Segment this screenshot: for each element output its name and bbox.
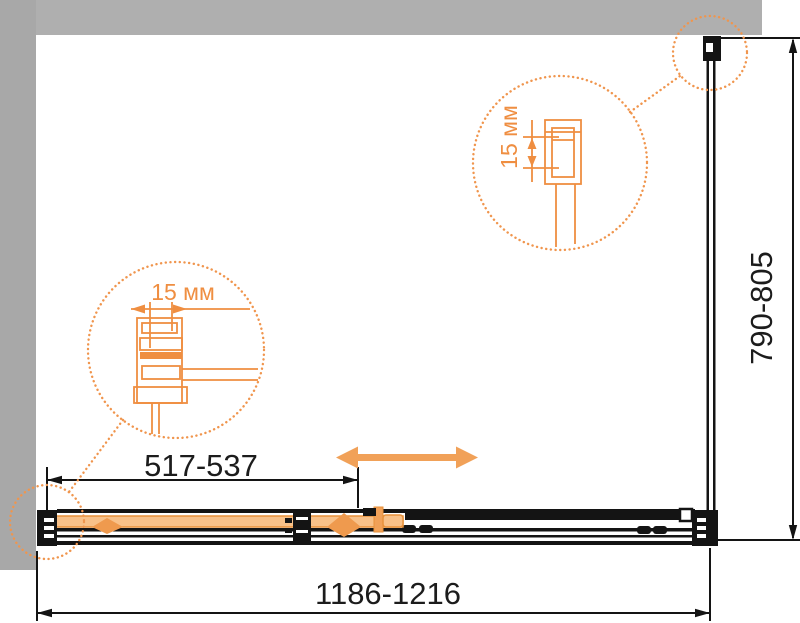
door-end-cap-orange <box>383 515 403 527</box>
arrowhead-bottom-icon <box>789 525 797 540</box>
detail-arrow-right-icon <box>173 305 187 314</box>
center-bracket <box>293 509 311 543</box>
arrow-head-right <box>456 447 478 469</box>
dimension-overall-width: 1186-1216 <box>37 548 710 621</box>
rail-bottom <box>57 541 695 545</box>
wall-top <box>0 0 762 35</box>
wall-profile-top-slot <box>706 43 713 52</box>
right-adjustment-value: 15 мм <box>496 105 522 169</box>
arrowhead-left-icon <box>37 609 52 617</box>
shower-enclosure-plan-drawing: 517-537 1186-1216 790-805 15 мм <box>0 0 800 623</box>
detail-profile-left <box>134 318 258 434</box>
glass-edge-line-2 <box>713 58 716 510</box>
arrowhead-top-icon <box>789 38 797 53</box>
arrowhead-right-icon <box>695 609 710 617</box>
technical-drawing-canvas: 517-537 1186-1216 790-805 15 мм <box>0 0 800 623</box>
sliding-door-frame <box>37 507 718 546</box>
junction-block <box>363 508 376 516</box>
roller-black-4 <box>653 526 667 534</box>
wall-profile-left-slot-2 <box>44 526 54 530</box>
roller-black-1 <box>402 525 416 533</box>
door-opening-value: 517-537 <box>144 448 258 483</box>
slide-direction-arrow-icon <box>336 447 478 469</box>
detail-arrow-down-icon <box>528 156 537 167</box>
rail-mid-2 <box>57 535 695 538</box>
door-knob-square <box>680 509 692 521</box>
wall-top-surface <box>0 0 762 35</box>
detail-leader-left <box>69 420 123 492</box>
wall-left <box>0 0 36 570</box>
end-profile-slot-1 <box>697 518 706 522</box>
arrow-head-left <box>336 447 358 469</box>
detail-profile-right <box>545 120 581 247</box>
fixed-panel-bar <box>405 513 693 520</box>
arrowhead-left-icon <box>47 476 62 484</box>
profile-band-1 <box>140 338 182 350</box>
dimension-overall-depth: 790-805 <box>718 38 800 540</box>
profile-outer <box>137 318 182 403</box>
center-bracket-tab-1 <box>285 518 292 523</box>
detail-arrow-up-icon <box>528 138 537 149</box>
center-bracket-slot-2 <box>296 530 308 533</box>
overall-depth-value: 790-805 <box>744 251 779 365</box>
center-bracket-slot-1 <box>296 517 308 520</box>
arrowhead-right-icon <box>343 476 358 484</box>
detail-arrow-left-icon <box>131 305 145 314</box>
profile-inner <box>552 128 574 177</box>
arrow-shaft <box>355 454 459 461</box>
wall-left-surface <box>0 0 36 570</box>
profile-band-filled <box>140 352 182 359</box>
roller-black-3 <box>637 526 651 534</box>
roller-black-2 <box>419 525 433 533</box>
profile-bottom-flange <box>134 387 187 403</box>
end-profile-slot-3 <box>697 534 706 538</box>
side-glass-panel <box>703 36 721 510</box>
wall-profile-left-slot-3 <box>44 534 54 538</box>
detail-leader-right <box>630 76 680 112</box>
glass-edge-line-1 <box>707 58 710 510</box>
center-bracket-tab-2 <box>285 528 292 533</box>
end-profile-slot-2 <box>697 526 706 530</box>
profile-outer <box>545 120 581 184</box>
overall-width-value: 1186-1216 <box>315 576 461 611</box>
wall-profile-left-slot-1 <box>44 518 54 522</box>
left-adjustment-value: 15 мм <box>151 279 215 305</box>
profile-band-2 <box>142 366 180 379</box>
